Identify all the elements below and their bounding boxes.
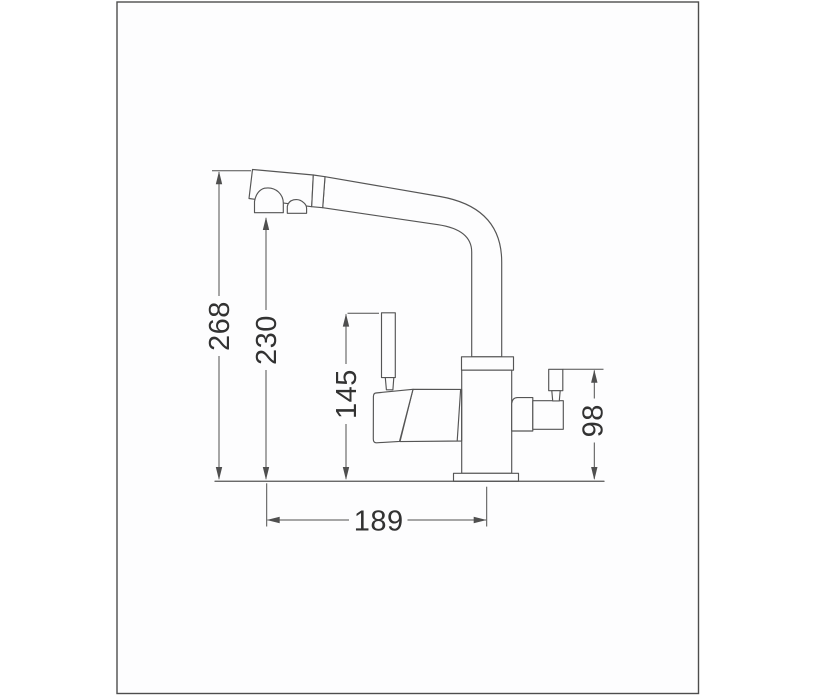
base-flange: [454, 473, 519, 481]
right-lever-neck: [552, 391, 560, 401]
dim-label-spout-reach: 189: [354, 505, 404, 537]
screenshot-canvas: 268 230 145 98 189: [0, 0, 816, 700]
right-lever: [549, 369, 563, 390]
dim-label-overall-height: 268: [204, 301, 236, 351]
spout-head-collar: [312, 175, 325, 208]
faucet-body: [462, 370, 512, 473]
dim-label-side-lever-height: 98: [577, 404, 609, 437]
right-valve-body: [533, 401, 564, 430]
left-lever-neck: [385, 378, 394, 390]
body-collar: [462, 357, 514, 370]
right-outlet: [512, 398, 533, 431]
dim-label-handle-lever-height: 145: [331, 369, 363, 419]
faucet-technical-drawing: 268 230 145 98 189: [0, 0, 816, 700]
left-lever: [382, 313, 396, 378]
dim-label-spout-outlet-height: 230: [251, 315, 283, 365]
